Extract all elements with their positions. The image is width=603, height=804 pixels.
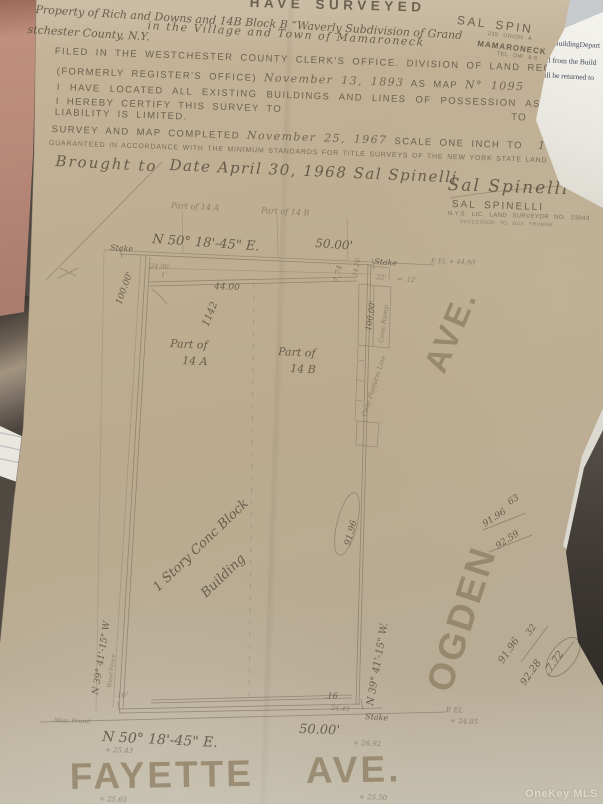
west-boundary-line [119, 256, 150, 709]
annotation-arrow-ticks [58, 268, 78, 278]
drawing-label: 24.45 [330, 704, 350, 713]
drawing-label: = .12' [397, 275, 417, 284]
drawing-label: .16 [325, 691, 338, 700]
building-center-line [249, 284, 254, 697]
drawing-label: Part of 14 A [170, 201, 220, 213]
drawing-label: E EL [445, 706, 464, 715]
drawing-label: + 25.50 [359, 793, 388, 802]
survey-map-photo: Part of 14 APart of 14 BN 50° 18'-45" E.… [0, 0, 603, 804]
drawing-label: Conc Ramp [377, 304, 390, 344]
as-map-text: AS MAP [411, 78, 458, 91]
drawing-label: N 50° 18'-45" E. [151, 232, 260, 255]
drawing-label: 91.96 [496, 635, 522, 665]
drawing-label: Part of [169, 337, 210, 352]
drawing-label: 63 [506, 493, 521, 508]
drawing-label: 50.00' [315, 236, 354, 253]
drawing-label: Part of 14 B [260, 206, 310, 218]
drawing-label: 24.00 [149, 262, 169, 271]
drawing-label: 7.74 [332, 264, 344, 283]
drawing-label: AVE. [305, 748, 401, 791]
drawing-label: N 39° 41'-15" W. [365, 622, 391, 708]
drawing-label: .16' [115, 691, 128, 699]
drawing-label: 44.00 [213, 282, 240, 293]
drawing-label: 7.72 [544, 649, 566, 674]
drawing-label: 1' [161, 271, 168, 279]
drawing-label: + 26.92 [353, 739, 382, 748]
drawing-label: 91.96 [481, 507, 508, 530]
drawing-label: 100.00' [364, 300, 377, 331]
pencil-mark [152, 289, 167, 304]
building-bottom-wall [151, 695, 352, 703]
drawing-label: .22' [374, 273, 387, 282]
drawing-label: 14 B [290, 362, 316, 376]
drawing-label: 32 [524, 622, 539, 637]
watermark: OneKey MLS [525, 788, 598, 800]
map-number-handwritten: N° 1095 [465, 78, 525, 93]
drawing-label: TO [511, 112, 527, 124]
drawing-label: 92.59 [494, 529, 521, 552]
dimension-circle [330, 491, 365, 558]
drawing-label: 1142 [201, 300, 221, 328]
building-top-wall [149, 277, 357, 286]
platform-outline [356, 421, 379, 447]
drawing-label: Part of [277, 345, 318, 360]
drawing-label: Mon. Found [53, 717, 91, 725]
drawing-label: 1 Story Conc Block [150, 496, 251, 595]
drawing-label: Stake [110, 243, 134, 254]
stake-ticks [118, 247, 374, 713]
drawing-label: 91.96 [343, 519, 359, 547]
drawing-label: OGDEN [419, 540, 505, 696]
drawing-label: Building [198, 552, 249, 602]
drawing-label: AVE. [416, 284, 484, 378]
drawing-label: 92.28 [518, 658, 543, 688]
drawing-label: + 25.43 [105, 746, 134, 755]
drawing-label: Stake [365, 712, 389, 723]
drawing-label: 50.00' [299, 722, 340, 738]
drawing-label: 100.00' [114, 271, 135, 306]
paper-left-edge [0, 0, 36, 642]
drawing-label: FAYETTE [69, 753, 254, 797]
drawing-label: Stake [374, 257, 398, 268]
survey-drawing: Part of 14 APart of 14 BN 50° 18'-45" E.… [0, 0, 603, 804]
surveyor-signature: Sal Spinelli [447, 175, 570, 199]
drawing-label: E EL + 44.40 [430, 257, 475, 267]
drawing-label: 14 A [182, 354, 208, 368]
drawing-label: + 24.85 [450, 717, 479, 726]
